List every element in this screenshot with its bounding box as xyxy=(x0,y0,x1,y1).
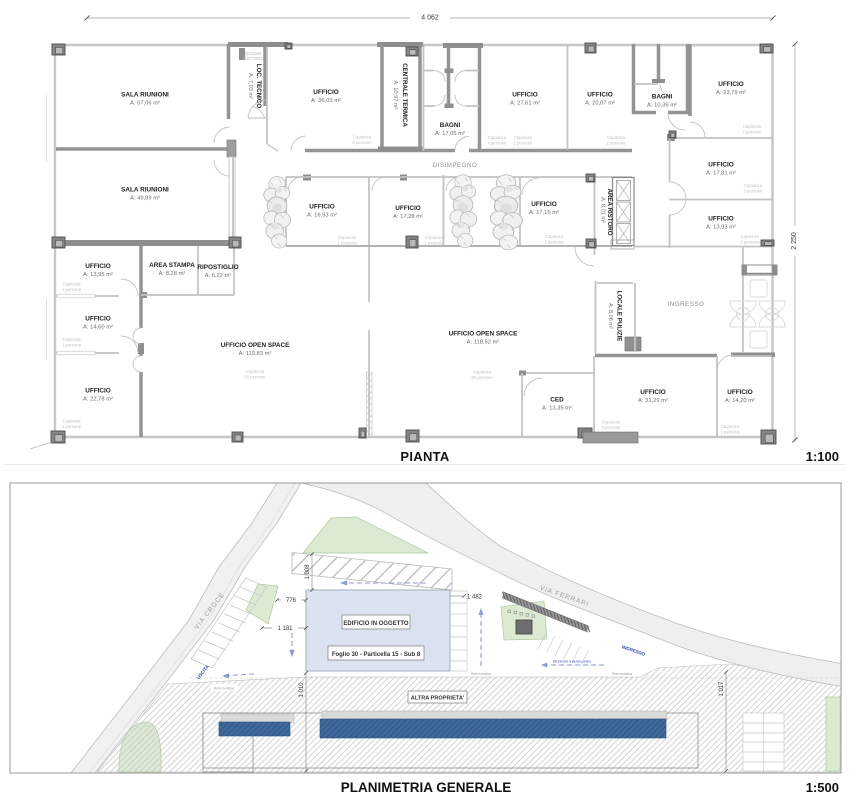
svg-text:A: 13,35 m²: A: 13,35 m² xyxy=(542,405,572,411)
svg-text:Capienza: Capienza xyxy=(473,370,492,375)
svg-text:UFFICIO OPEN SPACE: UFFICIO OPEN SPACE xyxy=(221,342,291,349)
svg-text:1 persona: 1 persona xyxy=(720,430,740,435)
svg-text:ELETTRICI: ELETTRICI xyxy=(242,56,263,61)
svg-text:1 017: 1 017 xyxy=(719,681,725,697)
svg-text:1 persona: 1 persona xyxy=(544,240,564,245)
svg-text:1 persona: 1 persona xyxy=(62,287,82,292)
svg-text:A: 27,61 m²: A: 27,61 m² xyxy=(510,100,540,106)
svg-text:A: 17,15 m²: A: 17,15 m² xyxy=(529,210,559,216)
svg-text:A: 118,52 m²: A: 118,52 m² xyxy=(467,339,500,345)
svg-text:Capienza: Capienza xyxy=(488,135,507,140)
svg-text:UFFICIO: UFFICIO xyxy=(640,389,666,396)
svg-text:UFFICIO: UFFICIO xyxy=(85,263,111,270)
svg-text:Rete metallica: Rete metallica xyxy=(214,687,234,691)
svg-text:A: 119,83 m²: A: 119,83 m² xyxy=(239,351,272,357)
svg-text:2 250: 2 250 xyxy=(791,232,798,250)
svg-text:20 persone: 20 persone xyxy=(471,375,493,380)
svg-text:Capienza: Capienza xyxy=(425,235,444,240)
svg-text:Capienza: Capienza xyxy=(607,135,626,140)
svg-text:A: 17,28 m²: A: 17,28 m² xyxy=(393,214,423,220)
svg-text:AREA STAMPA: AREA STAMPA xyxy=(149,262,195,269)
svg-text:1 persona: 1 persona xyxy=(424,241,444,246)
svg-text:A: 10,97 m²: A: 10,97 m² xyxy=(392,81,398,110)
svg-text:Capienza: Capienza xyxy=(721,424,740,429)
svg-text:2 persone: 2 persone xyxy=(743,189,763,194)
svg-text:A: 7,03 m²: A: 7,03 m² xyxy=(247,73,253,99)
svg-text:EDIFICIO IN OGGETTO: EDIFICIO IN OGGETTO xyxy=(343,621,409,627)
svg-text:A: 10,36 m²: A: 10,36 m² xyxy=(647,102,677,108)
svg-text:A: 13,95 m²: A: 13,95 m² xyxy=(83,272,113,278)
svg-text:UFFICIO: UFFICIO xyxy=(85,388,111,395)
svg-text:776: 776 xyxy=(286,598,297,604)
svg-text:A: 8,01 m²: A: 8,01 m² xyxy=(600,197,606,223)
svg-text:A: 23,79 m²: A: 23,79 m² xyxy=(716,90,746,96)
svg-text:A: 57,06 m²: A: 57,06 m² xyxy=(130,100,160,106)
svg-text:PLANIMETRIA GENERALE: PLANIMETRIA GENERALE xyxy=(341,780,512,795)
svg-text:1 181: 1 181 xyxy=(277,626,293,632)
svg-text:A: 17,81 m²: A: 17,81 m² xyxy=(706,170,736,176)
svg-text:1 persona: 1 persona xyxy=(337,241,357,246)
svg-text:Capienza: Capienza xyxy=(62,419,81,424)
svg-text:UFFICIO: UFFICIO xyxy=(85,316,111,323)
svg-text:A: 8,06 m²: A: 8,06 m² xyxy=(607,303,613,329)
svg-text:A: 31,29 m²: A: 31,29 m² xyxy=(638,398,668,404)
svg-text:Capienza: Capienza xyxy=(353,135,372,140)
svg-text:1 persona: 1 persona xyxy=(62,343,82,348)
svg-text:6 persone: 6 persone xyxy=(352,140,372,145)
svg-text:SALA RIUNIONI: SALA RIUNIONI xyxy=(121,92,169,99)
svg-text:Capienza: Capienza xyxy=(744,183,763,188)
svg-text:RIPOSTIGLIO: RIPOSTIGLIO xyxy=(197,264,238,271)
svg-text:A: 14,20 m²: A: 14,20 m² xyxy=(725,398,755,404)
svg-text:A: 49,89 m²: A: 49,89 m² xyxy=(130,195,160,201)
svg-text:4 persone: 4 persone xyxy=(487,141,507,146)
svg-text:2 persone: 2 persone xyxy=(62,424,82,429)
svg-text:UFFICIO OPEN SPACE: UFFICIO OPEN SPACE xyxy=(449,331,519,338)
svg-text:Capienza: Capienza xyxy=(62,282,81,287)
svg-text:2 persone: 2 persone xyxy=(513,141,533,146)
svg-text:A: 17,05 m²: A: 17,05 m² xyxy=(435,131,465,137)
svg-text:A: 14,60 m²: A: 14,60 m² xyxy=(83,324,113,330)
svg-text:LOC. TECNICO: LOC. TECNICO xyxy=(255,64,262,109)
svg-text:Rete metallica: Rete metallica xyxy=(612,672,632,676)
svg-text:AREA RISTORO: AREA RISTORO xyxy=(606,188,613,235)
svg-text:Direzione a senso unico: Direzione a senso unico xyxy=(553,660,591,664)
svg-text:Capienza: Capienza xyxy=(514,135,533,140)
svg-text:2 persone: 2 persone xyxy=(742,130,762,135)
svg-text:1 010: 1 010 xyxy=(299,682,305,698)
svg-text:A: 16,93 m²: A: 16,93 m² xyxy=(307,212,337,218)
svg-text:A: 22,78 m²: A: 22,78 m² xyxy=(83,396,113,402)
svg-text:SALA RIUNIONI: SALA RIUNIONI xyxy=(121,187,169,194)
svg-text:UFFICIO: UFFICIO xyxy=(309,204,335,211)
svg-text:Rete metallica: Rete metallica xyxy=(471,672,491,676)
svg-text:1:500: 1:500 xyxy=(806,780,839,795)
svg-text:LOCALE PULIZIE: LOCALE PULIZIE xyxy=(616,291,623,342)
svg-text:1 008: 1 008 xyxy=(305,564,311,580)
svg-text:Capienza: Capienza xyxy=(62,337,81,342)
svg-text:Capienza: Capienza xyxy=(743,124,762,129)
svg-text:UFFICIO: UFFICIO xyxy=(718,81,744,88)
svg-text:DISIMPEGNO: DISIMPEGNO xyxy=(433,162,478,169)
svg-text:Capienza: Capienza xyxy=(246,369,265,374)
svg-text:A: 6,22 m²: A: 6,22 m² xyxy=(205,273,232,279)
svg-text:Capienza: Capienza xyxy=(545,234,564,239)
svg-text:ALTRA PROPRIETA': ALTRA PROPRIETA' xyxy=(411,696,465,702)
svg-text:BAGNI: BAGNI xyxy=(440,122,461,129)
svg-text:2 persone: 2 persone xyxy=(606,141,626,146)
svg-text:UFFICIO: UFFICIO xyxy=(587,92,613,99)
svg-text:BAGNI: BAGNI xyxy=(652,94,673,101)
svg-text:UFFICIO: UFFICIO xyxy=(727,389,753,396)
svg-text:Foglio 30 - Particella 15 - Su: Foglio 30 - Particella 15 - Sub 8 xyxy=(332,652,421,658)
svg-text:1 persona: 1 persona xyxy=(740,240,760,245)
svg-text:1:100: 1:100 xyxy=(806,449,839,464)
svg-text:20 persone: 20 persone xyxy=(244,375,266,380)
svg-text:UFFICIO: UFFICIO xyxy=(313,89,339,96)
svg-text:4 062: 4 062 xyxy=(421,15,439,22)
svg-text:Capienza: Capienza xyxy=(338,235,357,240)
svg-text:A: 13,93 m²: A: 13,93 m² xyxy=(706,224,736,230)
svg-text:UFFICIO: UFFICIO xyxy=(395,205,421,212)
svg-text:Capienza: Capienza xyxy=(741,234,760,239)
svg-text:CED: CED xyxy=(550,397,564,404)
svg-text:4 persone: 4 persone xyxy=(601,425,621,430)
svg-text:Capienza: Capienza xyxy=(602,420,621,425)
svg-text:UFFICIO: UFFICIO xyxy=(708,216,734,223)
svg-text:CENTRALE TERMICA: CENTRALE TERMICA xyxy=(401,63,408,127)
svg-text:INGRESSO: INGRESSO xyxy=(668,301,705,308)
svg-text:UFFICIO: UFFICIO xyxy=(512,92,538,99)
svg-text:A: 20,07 m²: A: 20,07 m² xyxy=(585,100,615,106)
svg-text:PIANTA: PIANTA xyxy=(400,449,450,464)
svg-text:UFFICIO: UFFICIO xyxy=(708,162,734,169)
svg-text:A: 36,03 m²: A: 36,03 m² xyxy=(311,98,341,104)
svg-text:A: 8,28 m²: A: 8,28 m² xyxy=(159,271,186,277)
svg-text:UFFICIO: UFFICIO xyxy=(531,201,557,208)
svg-text:1 482: 1 482 xyxy=(467,595,483,601)
